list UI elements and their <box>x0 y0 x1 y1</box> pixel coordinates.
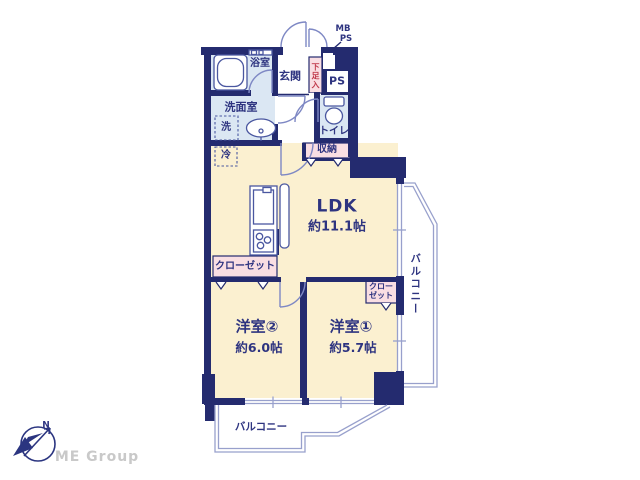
balcony-south-label: バルコニー <box>235 422 287 433</box>
storage-label: 収納 <box>317 145 337 155</box>
entrance-main-door-arc <box>281 22 306 47</box>
compass-icon <box>13 427 55 461</box>
ldk-size-label: 約11.1帖 <box>308 221 366 234</box>
bathroom-label: 浴室 <box>250 59 270 69</box>
room1-label: 洋室① <box>330 320 373 335</box>
floor-plan-page: MB PS PS 玄関 下足入 浴室 洗面室 洗 トイレ 収納 冷 LDK 約1… <box>0 0 640 480</box>
kitchen-unit-icon <box>250 184 289 255</box>
bath-counter-icon <box>249 50 272 55</box>
toilet-label: トイレ <box>319 127 349 137</box>
entrance-child-door-arc <box>309 29 327 47</box>
toilet-icon <box>324 97 344 124</box>
ps-shaft-label: PS <box>340 35 352 44</box>
floor-plan-drawing <box>0 0 640 480</box>
ldk-label: LDK <box>316 199 357 216</box>
closet-room1-label-line2: ゼット <box>369 292 393 300</box>
closet-room2-label: クローゼット <box>215 262 275 272</box>
kitchen-sink-icon <box>254 190 274 224</box>
washroom-label: 洗面室 <box>225 102 258 113</box>
room1-size-label: 約5.7帖 <box>329 342 376 355</box>
company-logo-text: ME Group <box>55 450 139 464</box>
kitchen-counter-panel <box>280 184 289 248</box>
north-mark-label: N <box>42 422 50 431</box>
meter-box-niche <box>323 53 335 69</box>
closet-room1-label-line1: クロー <box>369 283 393 291</box>
bathtub-icon <box>214 55 247 90</box>
washer-label: 洗 <box>221 123 231 133</box>
mb-label: MB <box>336 25 351 34</box>
balcony-east-label: バルコニー <box>410 253 421 316</box>
shoe-cabinet-label: 下足入 <box>311 63 319 90</box>
fridge-label: 冷 <box>221 151 231 161</box>
ps-room-label: PS <box>329 76 345 87</box>
room2-label: 洋室② <box>236 320 279 335</box>
entrance-label: 玄関 <box>279 71 301 82</box>
room2-size-label: 約6.0帖 <box>235 342 282 355</box>
kitchen-faucet-icon <box>263 188 271 193</box>
